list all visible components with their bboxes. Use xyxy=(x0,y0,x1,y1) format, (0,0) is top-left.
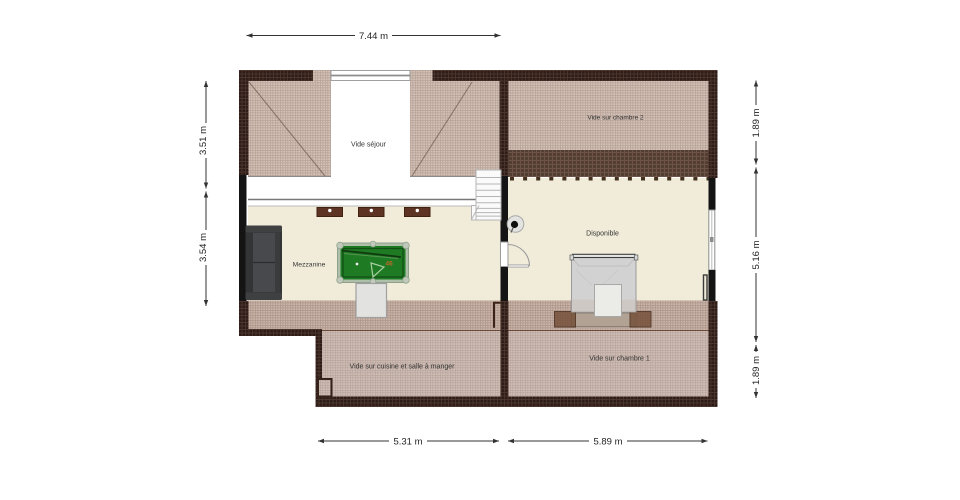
svg-text:5.16 m: 5.16 m xyxy=(751,240,762,269)
svg-text:7.44 m: 7.44 m xyxy=(359,31,388,42)
svg-text:1.89 m: 1.89 m xyxy=(751,356,762,385)
svg-text:3.54 m: 3.54 m xyxy=(198,233,209,262)
svg-text:3.51 m: 3.51 m xyxy=(198,126,209,155)
svg-text:46: 46 xyxy=(386,261,394,268)
svg-text:Disponible: Disponible xyxy=(586,231,619,238)
svg-text:5.89 m: 5.89 m xyxy=(593,437,622,448)
svg-text:5.31 m: 5.31 m xyxy=(393,437,422,448)
svg-text:Mezzanine: Mezzanine xyxy=(293,262,326,269)
svg-text:1.89 m: 1.89 m xyxy=(751,108,762,137)
svg-text:Vide sur chambre 1: Vide sur chambre 1 xyxy=(589,356,650,363)
svg-text:Vide sur cuisine et salle à ma: Vide sur cuisine et salle à manger xyxy=(350,364,456,371)
svg-text:Vide séjour: Vide séjour xyxy=(351,142,387,149)
svg-text:Vide sur chambre 2: Vide sur chambre 2 xyxy=(587,115,644,122)
